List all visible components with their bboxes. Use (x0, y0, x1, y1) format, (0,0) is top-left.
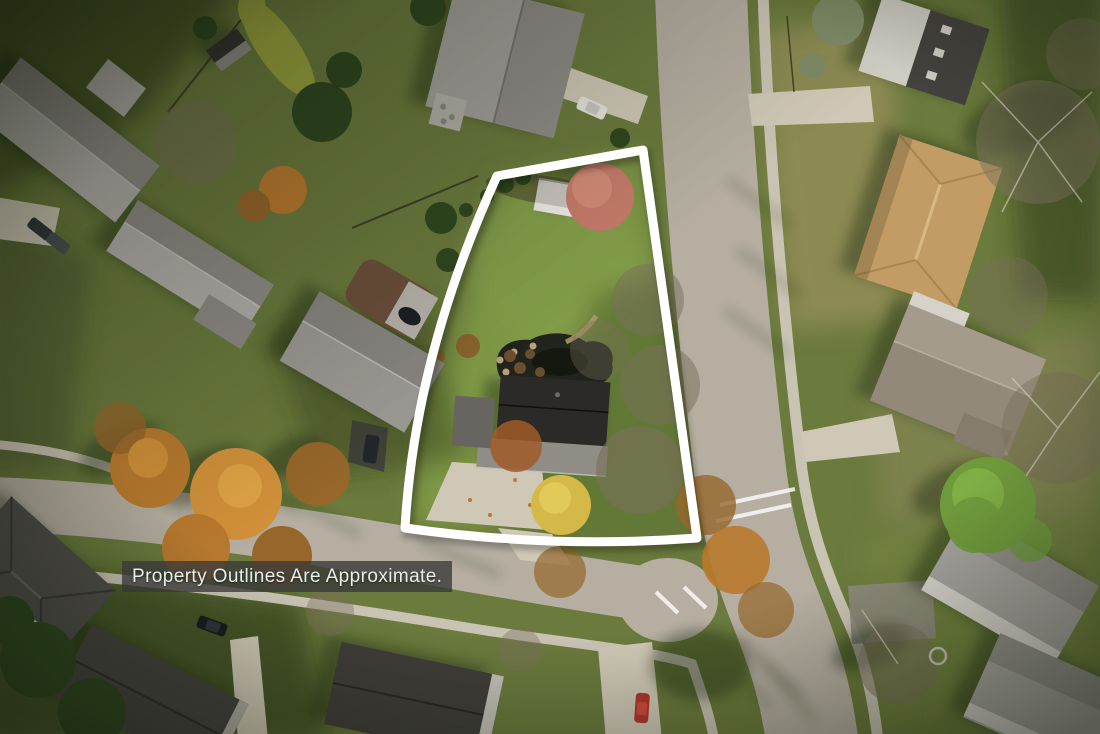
property-outline-disclaimer: Property Outlines Are Approximate. (122, 561, 452, 592)
disclaimer-text: Property Outlines Are Approximate. (132, 566, 442, 587)
corner-shade (0, 0, 1100, 734)
aerial-photo-container: Property Outlines Are Approximate. (0, 0, 1100, 734)
aerial-photo (0, 0, 1100, 734)
